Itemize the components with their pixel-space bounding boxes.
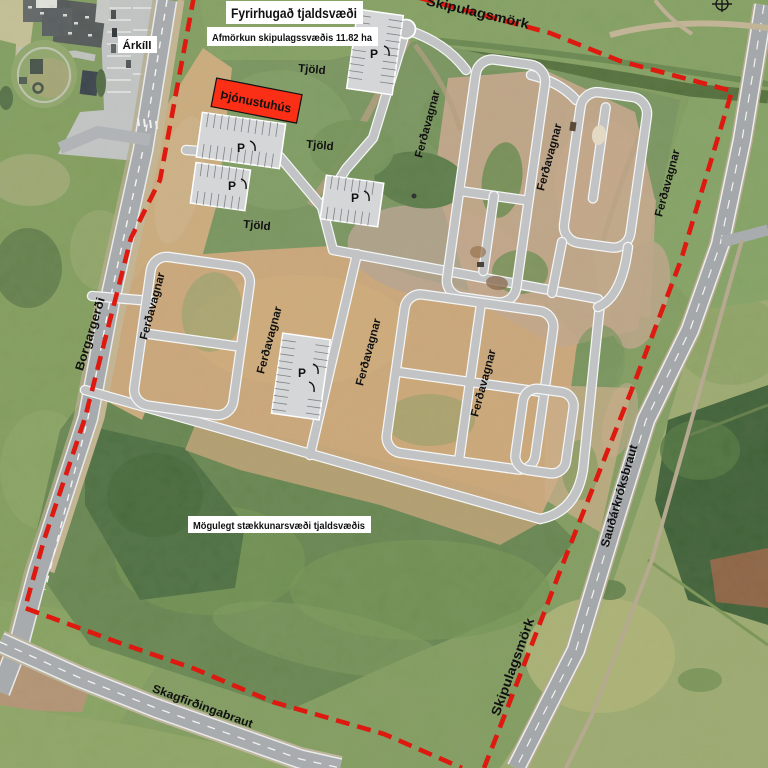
- svg-text:P: P: [237, 141, 245, 155]
- svg-text:P: P: [298, 366, 306, 380]
- svg-text:P: P: [228, 179, 236, 193]
- svg-text:Tjöld: Tjöld: [306, 139, 334, 153]
- svg-text:P: P: [370, 47, 378, 61]
- svg-text:Mögulegt stækkunarsvæði tjalds: Mögulegt stækkunarsvæði tjaldsvæðis: [193, 520, 365, 532]
- svg-text:Árkíll: Árkíll: [123, 39, 152, 52]
- svg-text:Tjöld: Tjöld: [243, 219, 271, 233]
- svg-text:Tjöld: Tjöld: [298, 63, 326, 77]
- svg-text:P: P: [351, 191, 359, 205]
- svg-text:Fyrirhugað tjaldsvæði: Fyrirhugað tjaldsvæði: [231, 6, 357, 21]
- svg-text:Afmörkun skipulagssvæðis 11.82: Afmörkun skipulagssvæðis 11.82 ha: [212, 32, 372, 44]
